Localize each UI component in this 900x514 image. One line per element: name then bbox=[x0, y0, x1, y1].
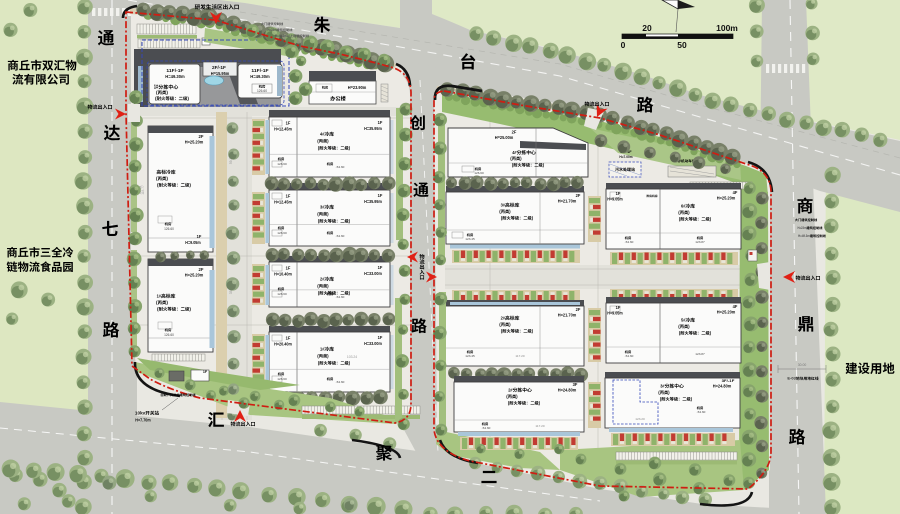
svg-text:H=49.30m: H=49.30m bbox=[165, 74, 184, 79]
svg-text:3F/-1F: 3F/-1F bbox=[722, 378, 735, 383]
svg-text:-54.60: -54.60 bbox=[625, 240, 634, 244]
svg-text:H=9.05m: H=9.05m bbox=[607, 196, 623, 201]
svg-text:11F/-1F: 11F/-1F bbox=[251, 68, 268, 73]
svg-text:3#: 3# bbox=[501, 203, 506, 209]
svg-text:H=49.3m: H=49.3m bbox=[798, 234, 810, 238]
svg-text:H=49.30m: H=49.30m bbox=[250, 74, 269, 79]
svg-text:3#: 3# bbox=[660, 384, 665, 390]
svg-text:1F: 1F bbox=[286, 335, 291, 340]
svg-text:123.45: 123.45 bbox=[465, 354, 475, 358]
svg-text:-54.60: -54.60 bbox=[697, 410, 706, 414]
svg-text:H=10.40m: H=10.40m bbox=[274, 271, 292, 276]
svg-text:117.20: 117.20 bbox=[515, 354, 525, 358]
svg-text:-54.60: -54.60 bbox=[336, 295, 345, 299]
svg-text:H=21.70m: H=21.70m bbox=[558, 312, 577, 317]
svg-text:123.87: 123.87 bbox=[695, 240, 705, 244]
svg-text:-54.60: -54.60 bbox=[336, 234, 345, 238]
svg-text:H=33.00m: H=33.00m bbox=[364, 341, 382, 346]
svg-text:H=24.80m: H=24.80m bbox=[713, 383, 732, 388]
svg-text:H=35.95m: H=35.95m bbox=[364, 199, 382, 204]
svg-text:3#: 3# bbox=[320, 205, 325, 211]
svg-text:2#: 2# bbox=[501, 316, 506, 322]
svg-text:H=33.00m: H=33.00m bbox=[364, 271, 382, 276]
svg-text:2F: 2F bbox=[199, 134, 204, 139]
svg-text:123.20: 123.20 bbox=[635, 417, 645, 421]
svg-text:H=25.20m: H=25.20m bbox=[717, 195, 736, 200]
svg-text:H=25.00m: H=25.00m bbox=[495, 135, 514, 140]
svg-text:-54.60: -54.60 bbox=[336, 380, 345, 384]
svg-text:-54.60: -54.60 bbox=[625, 354, 634, 358]
svg-text:4F: 4F bbox=[733, 304, 738, 309]
svg-text:H=21.70m: H=21.70m bbox=[558, 198, 577, 203]
svg-text:H=7.00m: H=7.00m bbox=[619, 155, 632, 159]
svg-text:1F: 1F bbox=[203, 370, 208, 374]
svg-text:126.60: 126.60 bbox=[164, 333, 174, 337]
svg-text:2#: 2# bbox=[508, 388, 513, 394]
svg-text:H=9.05m: H=9.05m bbox=[185, 240, 201, 245]
svg-text:1#: 1# bbox=[320, 347, 325, 353]
svg-text:126.60: 126.60 bbox=[257, 89, 267, 93]
svg-text:1F: 1F bbox=[616, 305, 621, 310]
svg-text:6#: 6# bbox=[681, 204, 686, 210]
svg-text:H=49.3m: H=49.3m bbox=[275, 34, 287, 38]
svg-text:126.60: 126.60 bbox=[277, 231, 287, 235]
svg-text:30.00: 30.00 bbox=[798, 363, 807, 367]
svg-text:H=35.95m: H=35.95m bbox=[364, 126, 382, 131]
svg-text:H=25.20m: H=25.20m bbox=[185, 272, 204, 277]
svg-text:H=12.45m: H=12.45m bbox=[274, 126, 292, 131]
svg-text:H=23.90m: H=23.90m bbox=[348, 85, 367, 90]
svg-text:5#: 5# bbox=[681, 318, 686, 324]
svg-text:H=23m: H=23m bbox=[268, 28, 277, 32]
svg-text:E-03: E-03 bbox=[787, 377, 796, 381]
svg-text:20: 20 bbox=[642, 23, 652, 33]
svg-text:1F: 1F bbox=[378, 193, 383, 198]
svg-text:-54.60: -54.60 bbox=[482, 426, 491, 430]
svg-text:1F: 1F bbox=[197, 234, 202, 239]
svg-text:H=15.95m: H=15.95m bbox=[211, 71, 230, 76]
svg-text:H=7.70m: H=7.70m bbox=[135, 417, 151, 422]
svg-text:10kv: 10kv bbox=[135, 411, 146, 416]
svg-text:123.45: 123.45 bbox=[465, 237, 475, 241]
svg-text:2F: 2F bbox=[576, 307, 581, 312]
svg-text:-54.60: -54.60 bbox=[336, 165, 345, 169]
svg-text:2F: 2F bbox=[199, 267, 204, 272]
svg-text:50: 50 bbox=[677, 40, 687, 50]
svg-text:3F: 3F bbox=[573, 382, 578, 387]
svg-text:1F: 1F bbox=[378, 335, 383, 340]
svg-text:H=24.80m: H=24.80m bbox=[558, 387, 577, 392]
svg-text:0: 0 bbox=[621, 40, 626, 50]
svg-text:H=25.20m: H=25.20m bbox=[185, 139, 204, 144]
svg-text:118.77: 118.77 bbox=[141, 185, 145, 195]
svg-text:H=12.45m: H=12.45m bbox=[274, 199, 292, 204]
svg-text:11F/-1F: 11F/-1F bbox=[166, 68, 183, 73]
svg-text:1F: 1F bbox=[378, 120, 383, 125]
svg-text:1F: 1F bbox=[286, 120, 291, 125]
svg-text:126.60: 126.60 bbox=[277, 377, 287, 381]
svg-text:H=20.40m: H=20.40m bbox=[274, 341, 292, 346]
svg-text:2#: 2# bbox=[320, 277, 325, 283]
svg-text:4F: 4F bbox=[733, 190, 738, 195]
svg-text:1F: 1F bbox=[286, 193, 291, 198]
svg-text:4#: 4# bbox=[512, 150, 517, 156]
svg-text:2F: 2F bbox=[576, 193, 581, 198]
svg-text:103.24: 103.24 bbox=[347, 355, 357, 359]
svg-text:1F: 1F bbox=[616, 191, 621, 196]
svg-text:4#: 4# bbox=[320, 132, 325, 138]
svg-text:2F: 2F bbox=[512, 129, 517, 134]
svg-text:126.60: 126.60 bbox=[164, 227, 174, 231]
svg-text:100m: 100m bbox=[716, 23, 738, 33]
svg-text:H=23m: H=23m bbox=[798, 226, 807, 230]
svg-text:H=9.05m: H=9.05m bbox=[607, 310, 623, 315]
svg-text:126.60: 126.60 bbox=[277, 162, 287, 166]
svg-text:117.20: 117.20 bbox=[535, 424, 545, 428]
svg-text:H=25.20m: H=25.20m bbox=[717, 309, 736, 314]
svg-text:1F: 1F bbox=[378, 265, 383, 270]
svg-text:123.87: 123.87 bbox=[695, 352, 705, 356]
svg-text:1F: 1F bbox=[286, 265, 291, 270]
svg-text:126.60: 126.60 bbox=[474, 171, 484, 175]
svg-text:2F/-1F: 2F/-1F bbox=[212, 65, 226, 70]
svg-text:126.60: 126.60 bbox=[277, 292, 287, 296]
svg-text:1#: 1# bbox=[157, 294, 162, 300]
